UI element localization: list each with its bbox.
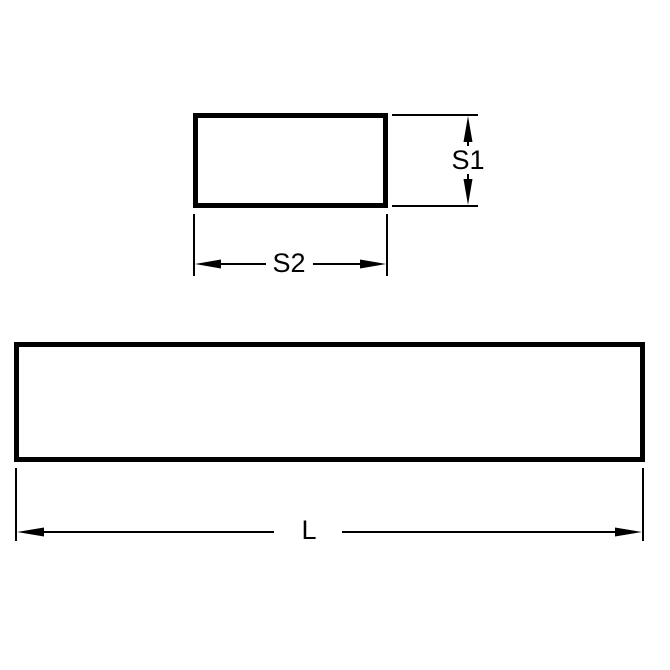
bar-rectangle	[17, 345, 643, 460]
dimension-label-s1: S1	[451, 145, 484, 175]
cross-section-rectangle	[196, 116, 386, 206]
technical-drawing: S1 S2 L	[0, 0, 670, 670]
arrow-left-icon	[17, 528, 44, 537]
dimension-label-l: L	[301, 515, 316, 545]
drawing-canvas: S1 S2 L	[0, 0, 670, 670]
dimension-l: L	[16, 468, 643, 545]
cross-section-view: S1 S2	[194, 115, 485, 278]
dimension-label-s2: S2	[272, 248, 305, 278]
arrow-left-icon	[195, 260, 221, 269]
arrow-right-icon	[360, 260, 386, 269]
dimension-s2: S2	[194, 214, 387, 278]
arrow-up-icon	[464, 116, 473, 142]
arrow-right-icon	[615, 528, 642, 537]
dimension-s1: S1	[392, 115, 485, 206]
side-view: L	[16, 345, 643, 546]
arrow-down-icon	[464, 179, 473, 205]
